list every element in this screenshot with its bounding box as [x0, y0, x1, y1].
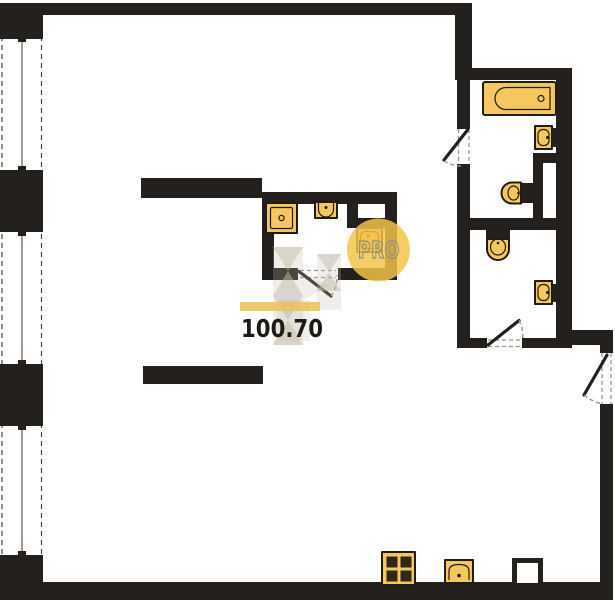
- floor-plan: PRO 100.70: [0, 0, 615, 600]
- toilet-tank: [486, 227, 510, 239]
- right-wall-below-entry: [600, 404, 613, 600]
- bathroom-shaft-stub-v: [533, 163, 543, 220]
- watermark-pro-text: PRO: [358, 238, 400, 264]
- duct-shaft: [515, 561, 541, 586]
- stove-burner: [401, 571, 412, 582]
- door-swing-arc: [584, 395, 601, 404]
- shower-tray-icon: [266, 203, 297, 233]
- left-pier-2: [0, 364, 43, 426]
- stove-burner: [387, 571, 398, 582]
- toilet-tank: [521, 183, 534, 203]
- kitchen-partition-upper: [141, 178, 262, 198]
- bathroom-wc-divider-wall: [457, 218, 572, 230]
- door-leaf: [584, 355, 607, 395]
- bathroom-top-wall: [456, 68, 572, 80]
- wc-door: [488, 321, 523, 347]
- toilet-flush: [517, 192, 520, 195]
- sink-faucet: [325, 206, 328, 209]
- floor-plan-canvas: PRO 100.70: [0, 0, 615, 600]
- kitchen-partition-lower: [143, 366, 263, 384]
- door-swing-arc: [444, 161, 461, 166]
- bathroom-sink-icon: [535, 126, 557, 149]
- stove-icon: [382, 552, 415, 585]
- wc-toilet-icon: [486, 227, 510, 260]
- right-upper-wall: [556, 68, 572, 345]
- sink-faucet: [546, 136, 549, 139]
- door-swing-arc: [519, 321, 523, 342]
- bathroom-left-wall-lower: [457, 164, 470, 348]
- bathroom-left-wall-upper: [457, 80, 470, 129]
- door-leaf: [488, 321, 519, 346]
- stove-burner: [387, 557, 398, 568]
- wc-bottom-wall-right: [522, 338, 572, 348]
- bathtub-icon: [483, 82, 556, 115]
- entry-door: [584, 353, 611, 404]
- sink-faucet: [546, 291, 549, 294]
- area-highlight-bar: [240, 302, 320, 311]
- top-wall: [0, 3, 472, 15]
- toilet-flush: [497, 242, 500, 245]
- area-label-group: 100.70: [240, 302, 323, 343]
- kitchen-sink-icon: [445, 560, 473, 583]
- area-label: 100.70: [241, 314, 323, 343]
- stove-burner: [401, 557, 412, 568]
- bathroom-door: [444, 129, 469, 166]
- wc-bottom-wall-left: [457, 338, 487, 348]
- top-left-corner-pier: [0, 3, 43, 39]
- bathroom-toilet-icon: [502, 183, 535, 204]
- wc-sink-icon: [535, 281, 558, 304]
- left-pier-1: [0, 170, 43, 232]
- bathroom-shaft-stub-h: [533, 153, 556, 163]
- door-leaf: [444, 130, 468, 160]
- ensuite-top-sink-icon: [315, 202, 337, 218]
- window-wall: [2, 36, 42, 558]
- sink-drain: [457, 574, 461, 578]
